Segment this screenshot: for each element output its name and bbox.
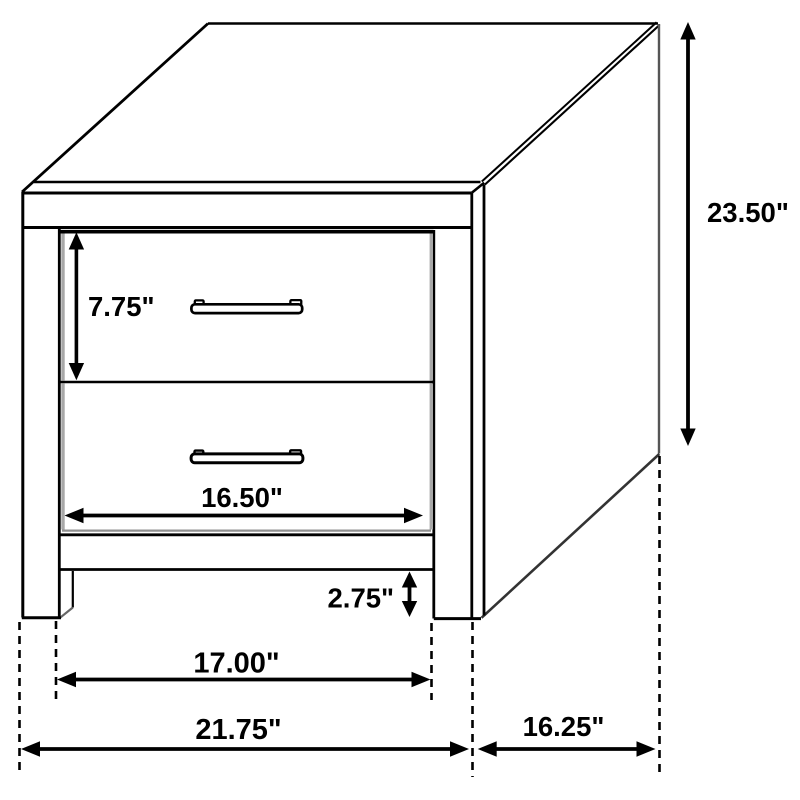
svg-text:21.75": 21.75": [195, 714, 281, 746]
svg-text:17.00": 17.00": [193, 648, 279, 680]
svg-text:2.75": 2.75": [328, 583, 395, 614]
svg-text:7.75": 7.75": [88, 291, 155, 322]
svg-text:16.50": 16.50": [201, 482, 283, 513]
svg-text:23.50": 23.50": [707, 197, 789, 228]
svg-text:16.25": 16.25": [523, 711, 605, 742]
